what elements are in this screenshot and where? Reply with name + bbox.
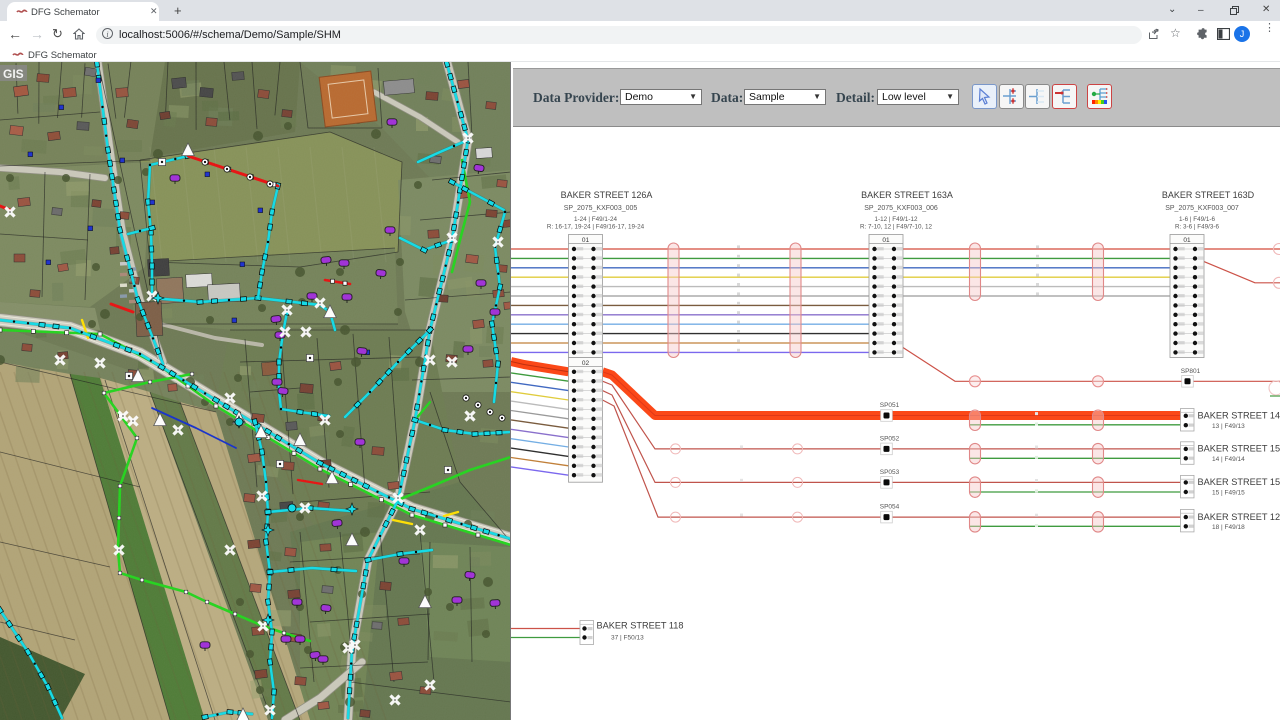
svg-text:BAKER STREET 163D: BAKER STREET 163D [1162, 190, 1255, 200]
svg-text:01: 01 [882, 237, 890, 244]
svg-text:18 | F49/18: 18 | F49/18 [1212, 524, 1245, 531]
svg-text:SP_2075_KXF003_005: SP_2075_KXF003_005 [564, 205, 638, 212]
svg-text:BAKER STREET 163A: BAKER STREET 163A [861, 190, 953, 200]
svg-text:SP053: SP053 [880, 469, 900, 476]
svg-text:14 | F49/14: 14 | F49/14 [1212, 456, 1245, 463]
svg-text:R: 3-6 | F49/3-6: R: 3-6 | F49/3-6 [1175, 224, 1219, 231]
svg-text:01: 01 [1183, 237, 1191, 244]
svg-text:BAKER STREET 147: BAKER STREET 147 [1198, 411, 1280, 421]
svg-text:02: 02 [582, 360, 590, 367]
svg-text:BAKER STREET 126A: BAKER STREET 126A [561, 190, 653, 200]
svg-text:SP052: SP052 [880, 435, 900, 442]
svg-text:SP_2075_KXF003_006: SP_2075_KXF003_006 [864, 205, 938, 212]
svg-text:BAKER STREET 151: BAKER STREET 151 [1198, 444, 1280, 454]
svg-text:GIS: GIS [3, 67, 24, 81]
svg-text:SP051: SP051 [880, 402, 900, 409]
svg-text:1-6 | F49/1-6: 1-6 | F49/1-6 [1179, 216, 1215, 223]
svg-text:15 | F49/15: 15 | F49/15 [1212, 490, 1245, 497]
svg-text:SP801: SP801 [1181, 368, 1201, 375]
svg-text:SP_2075_KXF003_007: SP_2075_KXF003_007 [1165, 205, 1239, 212]
svg-text:1-12 | F49/1-12: 1-12 | F49/1-12 [875, 216, 918, 223]
svg-text:R: 16-17, 19-24 | F49/16-17, 1: R: 16-17, 19-24 | F49/16-17, 19-24 [547, 224, 645, 231]
svg-text:BAKER STREET 118: BAKER STREET 118 [597, 621, 684, 631]
svg-text:BAKER STREET 121: BAKER STREET 121 [1198, 512, 1280, 522]
svg-text:37 | F50/13: 37 | F50/13 [611, 635, 644, 642]
svg-text:R: 7-10, 12 | F49/7-10, 12: R: 7-10, 12 | F49/7-10, 12 [860, 224, 932, 231]
svg-text:1-24 | F49/1-24: 1-24 | F49/1-24 [574, 216, 617, 223]
svg-text:01: 01 [582, 237, 590, 244]
svg-text:13 | F49/13: 13 | F49/13 [1212, 423, 1245, 430]
svg-text:SP054: SP054 [880, 504, 900, 511]
svg-text:BAKER STREET 155: BAKER STREET 155 [1198, 477, 1280, 487]
